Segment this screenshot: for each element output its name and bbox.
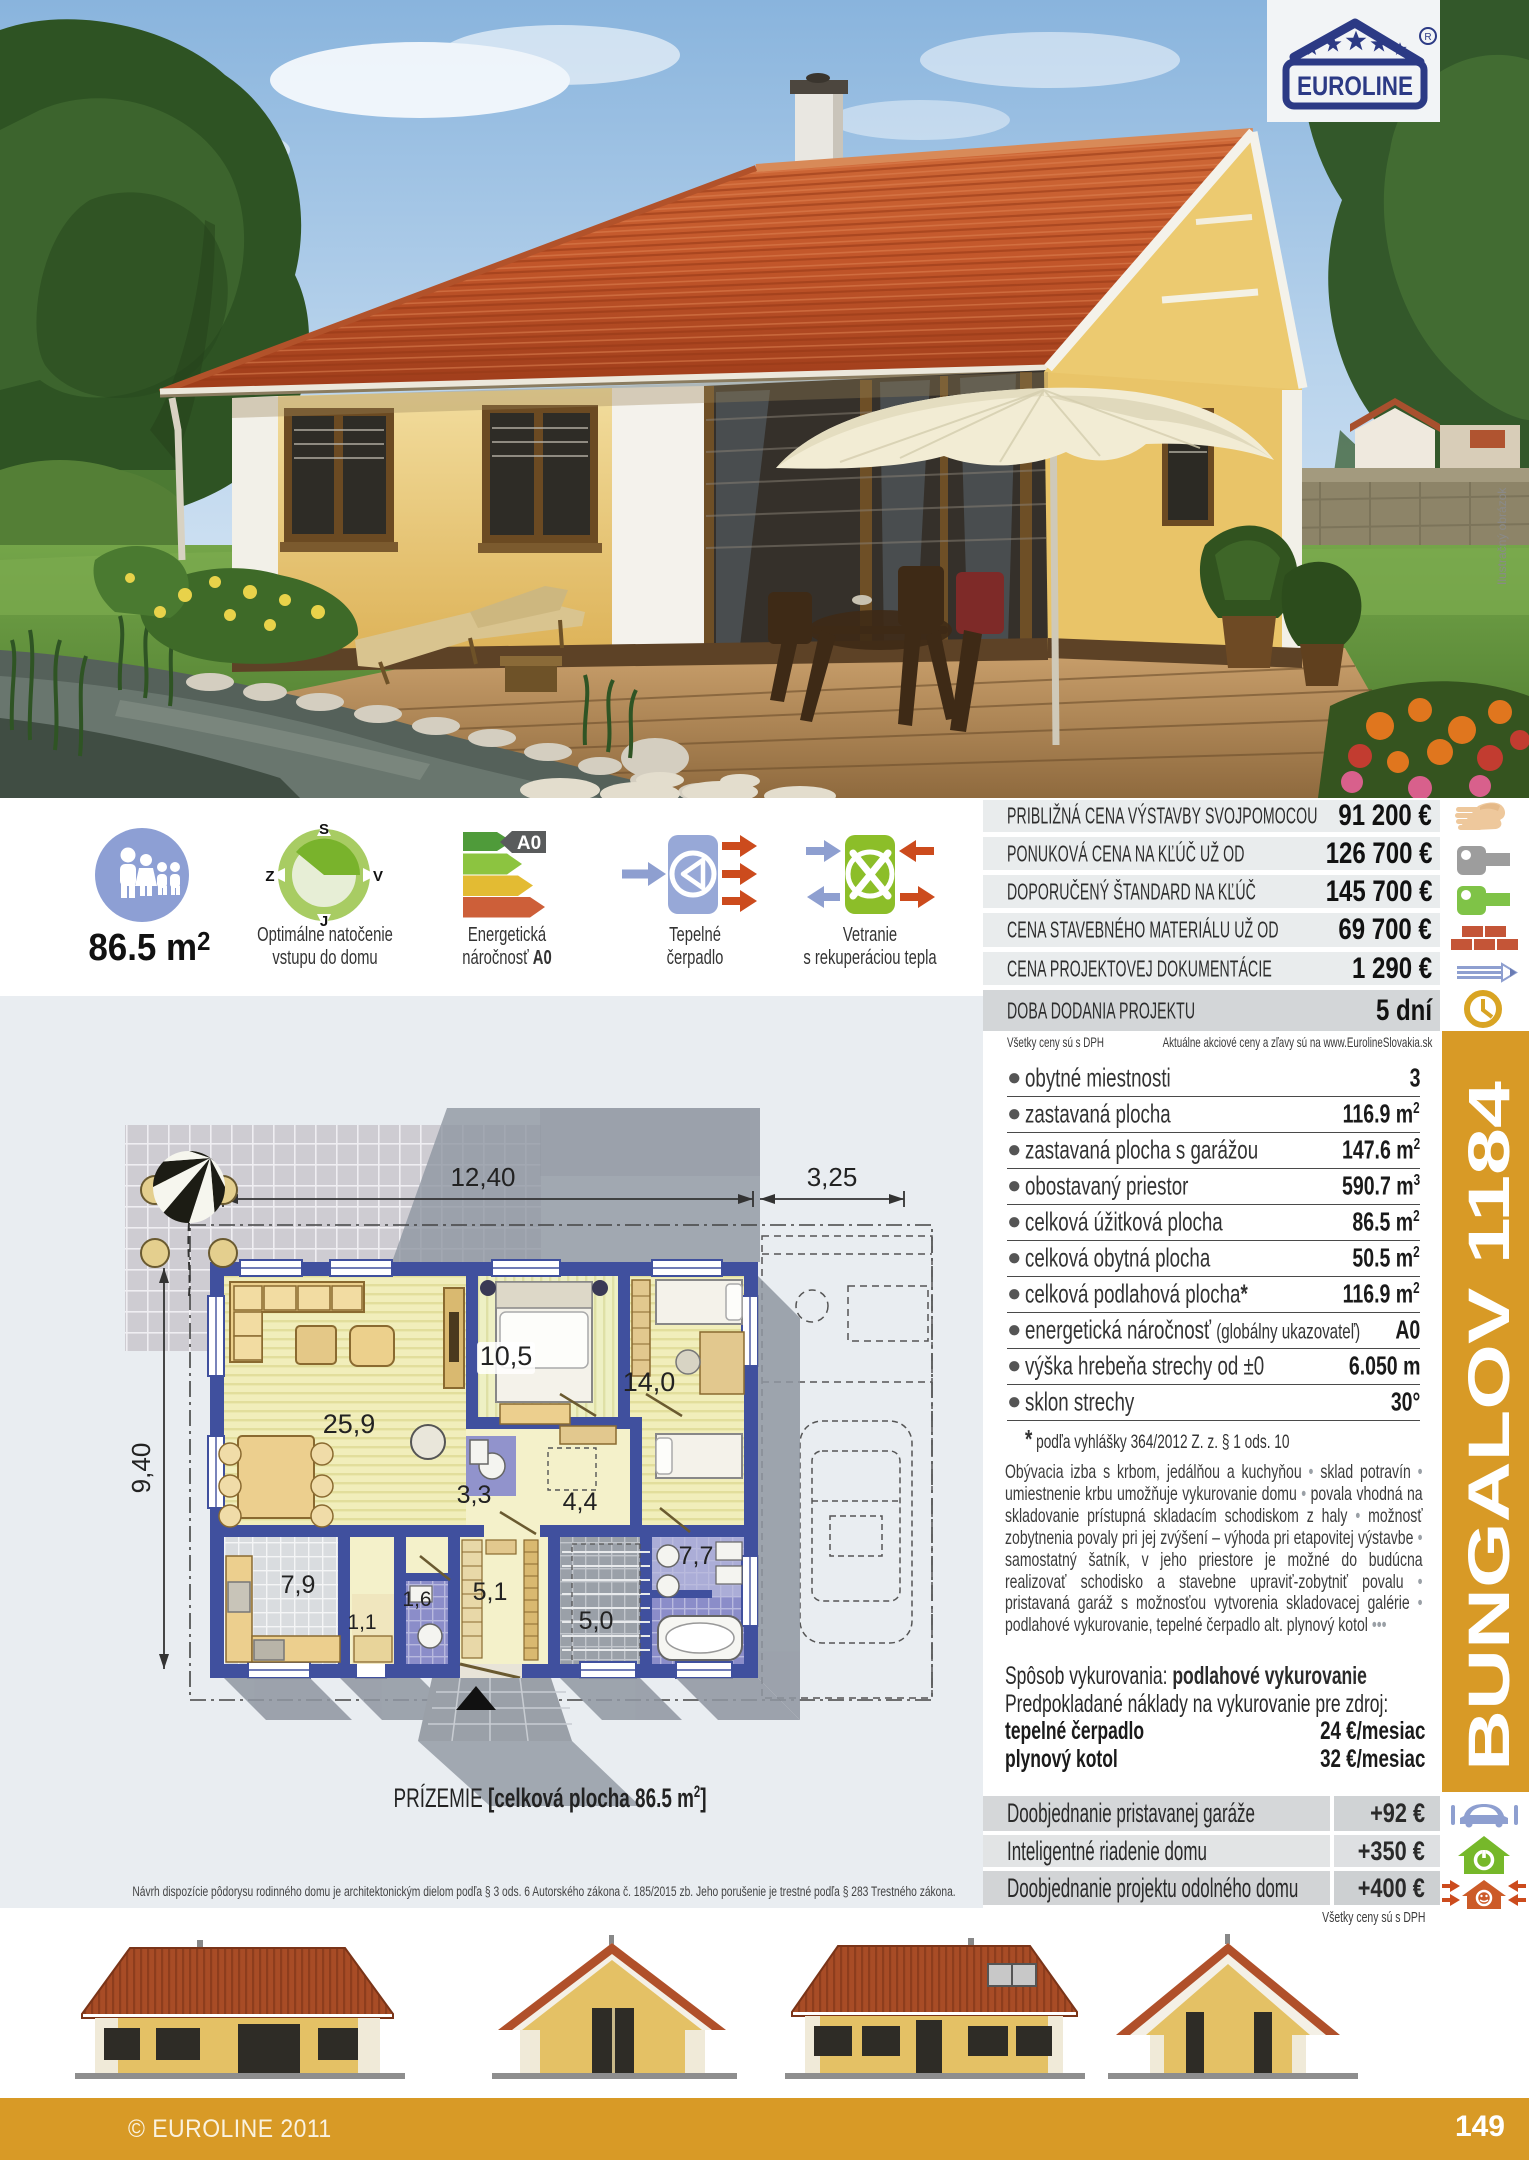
svg-text:5,1: 5,1 xyxy=(473,1578,508,1606)
svg-text:1,6: 1,6 xyxy=(402,1588,431,1611)
svg-text:A0: A0 xyxy=(517,833,541,854)
svg-text:Z: Z xyxy=(265,868,274,885)
svg-text:14,0: 14,0 xyxy=(623,1367,676,1397)
svg-text:25,9: 25,9 xyxy=(323,1409,376,1439)
svg-text:R: R xyxy=(1424,32,1431,43)
svg-text:3,25: 3,25 xyxy=(807,1162,858,1192)
svg-text:86.5 m2: 86.5 m2 xyxy=(88,926,210,969)
svg-text:3,3: 3,3 xyxy=(457,1481,492,1509)
svg-text:4,4: 4,4 xyxy=(563,1488,598,1516)
svg-text:7,7: 7,7 xyxy=(679,1542,714,1570)
svg-text:1,1: 1,1 xyxy=(347,1611,376,1634)
svg-text:7,9: 7,9 xyxy=(281,1571,316,1599)
svg-text:10,5: 10,5 xyxy=(480,1341,533,1371)
svg-text:S: S xyxy=(319,821,329,838)
svg-text:Ilustračný obrázok: Ilustračný obrázok xyxy=(1495,487,1509,585)
svg-text:EUROLINE: EUROLINE xyxy=(1297,71,1413,101)
svg-text:5,0: 5,0 xyxy=(579,1607,614,1635)
svg-text:9,40: 9,40 xyxy=(126,1443,156,1494)
svg-text:V: V xyxy=(373,868,383,885)
svg-text:BUNGALOV 1184: BUNGALOV 1184 xyxy=(1457,1081,1522,1771)
svg-text:12,40: 12,40 xyxy=(450,1162,515,1192)
